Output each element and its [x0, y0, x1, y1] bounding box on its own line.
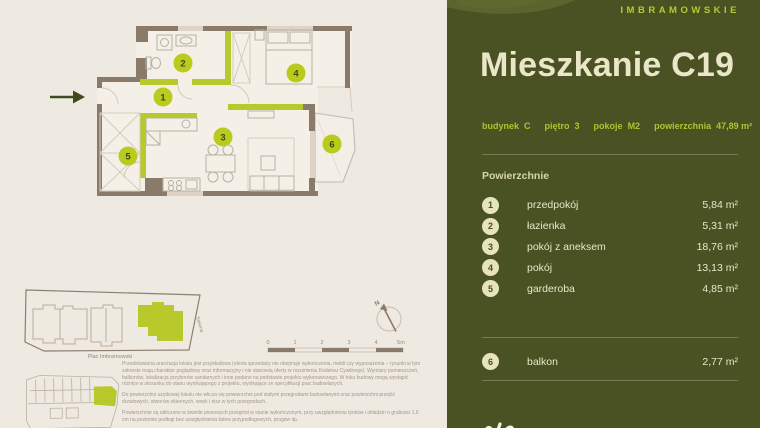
square-label: Plac Imbramowski: [88, 354, 133, 360]
leaf-decoration-icon: [447, 0, 577, 22]
room-marker: 3: [214, 128, 233, 147]
apartment-title: Mieszkanie C19: [480, 46, 734, 85]
room-row: 6 balkon 2,77 m²: [482, 351, 738, 372]
scale-tick: 3: [347, 340, 350, 346]
disclaimer-paragraph: Przedstawiona aranżacja lokalu jest przy…: [122, 361, 422, 388]
room-marker-label: 3: [220, 133, 225, 144]
room-marker-label: 4: [293, 69, 299, 80]
developer-logo-cutoff: [480, 412, 514, 428]
highlighted-building: [138, 302, 183, 341]
room-row: 1 przedpokój 5,84 m²: [482, 195, 738, 216]
room-name: pokój: [527, 262, 552, 274]
meta-pietro: piętro3: [545, 121, 580, 131]
room-name: łazienka: [527, 220, 566, 232]
room-marker: 5: [119, 147, 138, 166]
meta-value: C: [524, 121, 531, 131]
separator: [482, 154, 738, 155]
room-area: 2,77 m²: [702, 356, 738, 368]
meta-budynek: budynekC: [482, 121, 531, 131]
room-name: pokój z aneksem: [527, 241, 606, 253]
room-marker-label: 6: [329, 140, 334, 151]
apartment-meta: budynekC piętro3 pokojeM2 powierzchnia47…: [482, 121, 752, 131]
room-number-badge: 6: [482, 353, 499, 370]
highlighted-unit: [94, 386, 117, 406]
room-area: 4,85 m²: [702, 283, 738, 295]
meta-value: 3: [575, 121, 580, 131]
room-marker: 1: [154, 88, 173, 107]
building-storey-plan: [26, 374, 120, 428]
info-panel: IMBRAMOWSKIE Mieszkanie C19 budynekC pię…: [447, 0, 760, 428]
scale-tick: 2: [320, 340, 323, 346]
room-area: 5,31 m²: [702, 220, 738, 232]
room-name: garderoba: [527, 283, 575, 295]
meta-label: pokoje: [594, 121, 623, 131]
room-name: przedpokój: [527, 199, 578, 211]
room-marker: 6: [323, 135, 342, 154]
room-marker: 2: [174, 54, 193, 73]
floor-plan: 1 2 3 4 5 6: [50, 26, 355, 196]
meta-powierzchnia: powierzchnia47,89 m²: [654, 121, 752, 131]
room-marker: 4: [287, 64, 306, 83]
disclaimer-paragraph: Powierzchnie są obliczone w świetle pion…: [122, 410, 422, 424]
compass-n-label: N: [374, 299, 382, 308]
scale-tick: 0: [266, 340, 269, 346]
scale-bar: 0 1 2 3 4 5m: [266, 340, 405, 352]
room-area: 13,13 m²: [697, 262, 738, 274]
room-list: 1 przedpokój 5,84 m² 2 łazienka 5,31 m² …: [482, 195, 738, 299]
scale-tick: 4: [374, 340, 377, 346]
room-number-badge: 2: [482, 218, 499, 235]
room-marker-label: 2: [180, 59, 185, 70]
disclaimer-paragraph: Do powierzchni użytkowej lokalu nie wlic…: [122, 392, 422, 406]
meta-label: budynek: [482, 121, 519, 131]
scale-tick: 1: [293, 340, 296, 346]
room-marker-label: 1: [160, 93, 166, 104]
brand-wordmark: IMBRAMOWSKIE: [620, 5, 740, 16]
meta-value: 47,89 m²: [716, 121, 752, 131]
scale-tick: 5m: [397, 340, 405, 346]
room-number-badge: 3: [482, 238, 499, 255]
brochure-page: 1 2 3 4 5 6 N: [0, 0, 760, 428]
meta-label: powierzchnia: [654, 121, 711, 131]
separator: [482, 337, 738, 338]
balcony-outline: [315, 87, 355, 182]
room-row: 3 pokój z aneksem 18,76 m²: [482, 237, 738, 258]
room-number-badge: 5: [482, 280, 499, 297]
room-name: balkon: [527, 356, 558, 368]
site-plan: Siewna Plac Imbramowski: [25, 290, 205, 360]
room-row: 5 garderoba 4,85 m²: [482, 278, 738, 299]
entrance-arrow-icon: [50, 91, 85, 104]
room-number-badge: 4: [482, 259, 499, 276]
room-area: 5,84 m²: [702, 199, 738, 211]
room-number-badge: 1: [482, 197, 499, 214]
separator: [482, 380, 738, 381]
disclaimer: Przedstawiona aranżacja lokalu jest przy…: [122, 361, 422, 427]
room-row: 4 pokój 13,13 m²: [482, 257, 738, 278]
room-row: 2 łazienka 5,31 m²: [482, 216, 738, 237]
room-area: 18,76 m²: [697, 241, 738, 253]
areas-section-label: Powierzchnie: [482, 170, 549, 182]
street-label: Siewna: [194, 316, 205, 334]
meta-value: M2: [628, 121, 641, 131]
meta-label: piętro: [545, 121, 570, 131]
meta-pokoje: pokojeM2: [594, 121, 641, 131]
room-marker-label: 5: [125, 152, 131, 163]
north-compass: N: [374, 299, 401, 331]
